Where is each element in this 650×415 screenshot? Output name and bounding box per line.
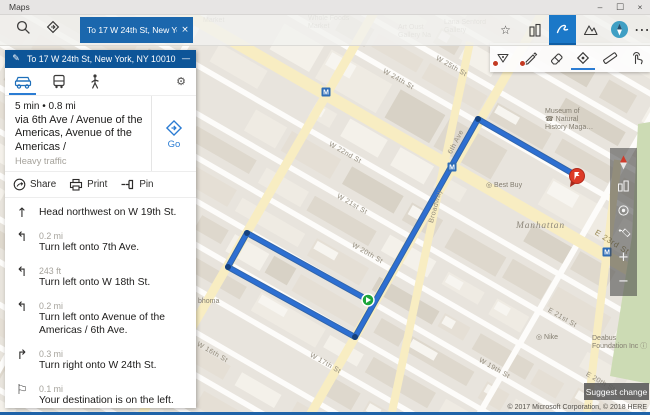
directions-diamond-icon (575, 50, 591, 66)
ellipsis-icon: ⋯ (634, 20, 650, 39)
app-title: Maps (9, 2, 590, 12)
print-label: Print (87, 179, 107, 190)
rotate-view-button[interactable] (615, 225, 632, 242)
panel-title: To 17 W 24th St, New York, NY 10010 (27, 54, 176, 64)
zoom-out-button[interactable]: − (615, 273, 632, 290)
ink-directions-button[interactable] (572, 46, 594, 70)
tilt-button[interactable] (615, 178, 632, 195)
pin-icon (120, 179, 135, 190)
step-text: Turn left onto Avenue of the Americas / … (39, 312, 190, 338)
direction-step[interactable]: ↰243 ftTurn left onto W 18th St. (5, 266, 190, 290)
metro-station-icon[interactable]: M (322, 88, 331, 97)
map-copyright: © 2017 Microsoft Corporation, © 2018 HER… (508, 404, 648, 411)
go-button[interactable]: Go (151, 96, 196, 171)
gear-icon: ⚙ (176, 75, 186, 88)
pen-color-dot (492, 60, 499, 67)
route-waypoint-dot (225, 264, 231, 270)
turn-left-icon: ↰ (5, 301, 39, 338)
settings-button[interactable]: ⚙ (166, 75, 196, 88)
share-button[interactable]: Share (13, 178, 56, 191)
step-distance: 0.3 mi (39, 349, 190, 359)
eraser-icon (549, 50, 565, 66)
directions-button[interactable] (38, 19, 68, 40)
my-location-icon (617, 204, 630, 217)
traffic-status: Heavy traffic (15, 156, 147, 166)
directions-list: ↑Head northwest on W 19th St.↰0.2 miTurn… (5, 198, 196, 408)
tab-drive[interactable] (5, 69, 41, 95)
step-text: Head northwest on W 19th St. (39, 207, 190, 220)
pencil-color-dot (519, 60, 526, 67)
panel-header: ✎ To 17 W 24th St, New York, NY 10010 — (5, 50, 196, 68)
step-text: Turn right onto W 24th St. (39, 360, 190, 373)
car-icon (14, 75, 32, 89)
svg-text:M: M (449, 165, 455, 172)
touch-writing-icon (629, 50, 645, 66)
city-3d-button[interactable] (520, 14, 549, 45)
step-distance: 243 ft (39, 266, 190, 276)
minimize-button[interactable]: – (590, 0, 610, 14)
mountain-icon (583, 23, 598, 36)
route-tab-close-icon[interactable]: × (177, 25, 193, 35)
close-button[interactable]: × (630, 0, 650, 14)
my-location-button[interactable] (615, 202, 632, 219)
city-buildings-icon (528, 23, 542, 37)
map-views-button[interactable] (576, 14, 605, 45)
tab-transit[interactable] (41, 69, 77, 95)
route-actions: SharePrintPin (5, 172, 196, 198)
directions-panel: ✎ To 17 W 24th St, New York, NY 10010 — (5, 50, 196, 408)
pencil-button[interactable] (519, 46, 541, 70)
go-diamond-icon (164, 118, 184, 138)
ink-toolbar (490, 43, 650, 72)
maximize-button[interactable]: □ (610, 0, 630, 14)
ruler-button[interactable] (599, 46, 621, 70)
route-via: via 6th Ave / Avenue of the Americas, Av… (15, 114, 147, 154)
search-button[interactable] (8, 20, 38, 40)
step-text: Turn left onto W 18th St. (39, 277, 190, 290)
favorites-button[interactable]: ☆ (491, 14, 520, 45)
turn-left-icon: ↰ (5, 266, 39, 290)
share-label: Share (30, 179, 56, 190)
map-controls: + − (610, 148, 637, 296)
direction-step[interactable]: ↰0.2 miTurn left onto Avenue of the Amer… (5, 301, 190, 338)
streetside-compass-icon (610, 20, 629, 39)
eraser-button[interactable] (546, 46, 568, 70)
ink-button[interactable] (549, 14, 576, 45)
tilt-buildings-icon (617, 180, 630, 192)
step-distance: 0.2 mi (39, 231, 190, 241)
touch-writing-button[interactable] (626, 46, 648, 70)
titlebar: Maps – □ × (0, 0, 650, 15)
route-start-marker (362, 294, 374, 306)
metro-station-icon[interactable]: M (448, 163, 457, 172)
step-text: Your destination is on the left. (39, 395, 190, 408)
collapse-panel-button[interactable]: — (176, 54, 196, 64)
step-distance: 0.2 mi (39, 301, 190, 311)
route-time-distance: 5 min • 0.8 mi (15, 101, 147, 112)
compass-icon (618, 155, 629, 170)
directions-icon (45, 19, 61, 35)
ballpoint-pen-button[interactable] (492, 46, 514, 70)
rotate-view-icon (617, 228, 631, 239)
route-waypoint-dot (352, 334, 358, 340)
share-icon (13, 178, 26, 191)
search-icon (16, 20, 31, 35)
flag-icon: ⚐ (5, 384, 39, 408)
svg-text:M: M (323, 90, 329, 97)
more-button[interactable]: ⋯ (634, 14, 650, 45)
zoom-in-button[interactable]: + (615, 249, 632, 266)
ruler-icon (602, 50, 618, 66)
app-toolbar: To 17 W 24th St, New York, N × ☆ (0, 14, 650, 46)
direction-step[interactable]: ↱0.3 miTurn right onto W 24th St. (5, 349, 190, 373)
step-distance: 0.1 mi (39, 384, 190, 394)
bus-icon (52, 74, 66, 89)
pin-label: Pin (139, 179, 153, 190)
ink-pen-icon (555, 21, 571, 37)
direction-step[interactable]: ↰0.2 miTurn left onto 7th Ave. (5, 231, 190, 255)
straight-icon: ↑ (5, 207, 39, 220)
walk-icon (90, 74, 100, 90)
turn-right-icon: ↱ (5, 349, 39, 373)
step-text: Turn left onto 7th Ave. (39, 242, 190, 255)
route-summary: 5 min • 0.8 mi via 6th Ave / Avenue of t… (5, 96, 196, 172)
print-button[interactable]: Print (69, 178, 107, 191)
compass-button[interactable] (615, 154, 632, 171)
tab-walk[interactable] (77, 69, 113, 95)
suggest-change-button[interactable]: Suggest change (584, 383, 649, 400)
turn-left-icon: ↰ (5, 231, 39, 255)
direction-step[interactable]: ↑Head northwest on W 19th St. (5, 207, 190, 220)
route-waypoint-dot (244, 230, 250, 236)
go-label: Go (168, 139, 181, 150)
travel-mode-tabs: ⚙ (5, 68, 196, 96)
print-icon (69, 178, 83, 191)
streetside-button[interactable] (605, 14, 634, 45)
direction-step[interactable]: ⚐0.1 miYour destination is on the left. (5, 384, 190, 408)
route-waypoint-dot (475, 116, 481, 122)
star-icon: ☆ (500, 23, 511, 37)
pin-button[interactable]: Pin (120, 179, 153, 190)
edit-route-icon[interactable]: ✎ (5, 54, 27, 64)
route-tab[interactable]: To 17 W 24th St, New York, N × (80, 17, 193, 43)
route-tab-label: To 17 W 24th St, New York, N (80, 25, 177, 35)
